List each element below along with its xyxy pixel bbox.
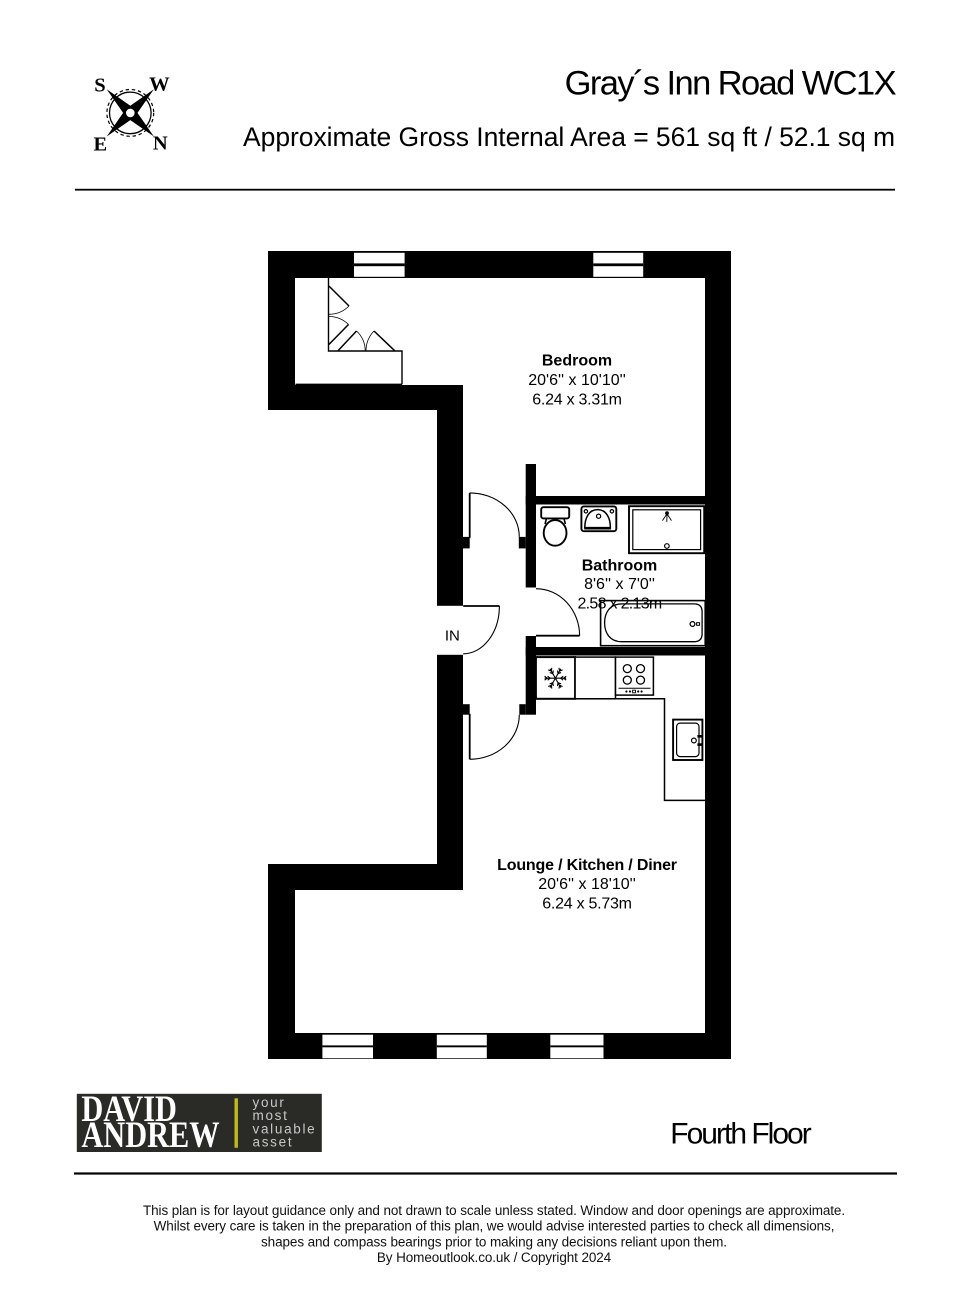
svg-text:This plan is for layout guidan: This plan is for layout guidance only an… <box>143 1203 845 1218</box>
svg-text:W: W <box>149 73 170 95</box>
svg-text:8'6'' x 7'0'': 8'6'' x 7'0'' <box>584 576 655 593</box>
svg-text:IN: IN <box>445 627 460 644</box>
svg-text:Bedroom: Bedroom <box>542 353 612 370</box>
svg-text:6.24 x 5.73m: 6.24 x 5.73m <box>542 896 632 913</box>
svg-text:N: N <box>153 132 168 154</box>
svg-text:Fourth Floor: Fourth Floor <box>670 1118 811 1151</box>
svg-text:Gray´s Inn Road WC1X: Gray´s Inn Road WC1X <box>565 65 897 103</box>
svg-text:S: S <box>94 75 105 97</box>
svg-text:E: E <box>93 133 107 155</box>
svg-text:20'6'' x 10'10'': 20'6'' x 10'10'' <box>528 372 626 389</box>
svg-text:By Homeoutlook.co.uk / Copyrig: By Homeoutlook.co.uk / Copyright 2024 <box>377 1250 612 1265</box>
svg-text:6.24 x 3.31m: 6.24 x 3.31m <box>532 391 622 408</box>
svg-text:shapes and compass bearings pr: shapes and compass bearings prior to mak… <box>261 1234 727 1249</box>
svg-text:asset: asset <box>253 1135 294 1150</box>
svg-text:Bathroom: Bathroom <box>582 557 658 574</box>
svg-text:2.58 x 2.13m: 2.58 x 2.13m <box>577 595 661 612</box>
svg-text:Whilst every care is taken in: Whilst every care is taken in the prepar… <box>154 1219 835 1234</box>
svg-text:ANDREW: ANDREW <box>81 1115 219 1155</box>
svg-text:20'6'' x 18'10'': 20'6'' x 18'10'' <box>538 876 636 893</box>
svg-text:Approximate Gross Internal Are: Approximate Gross Internal Area = 561 sq… <box>243 122 895 152</box>
svg-text:Lounge / Kitchen / Diner: Lounge / Kitchen / Diner <box>497 857 677 874</box>
